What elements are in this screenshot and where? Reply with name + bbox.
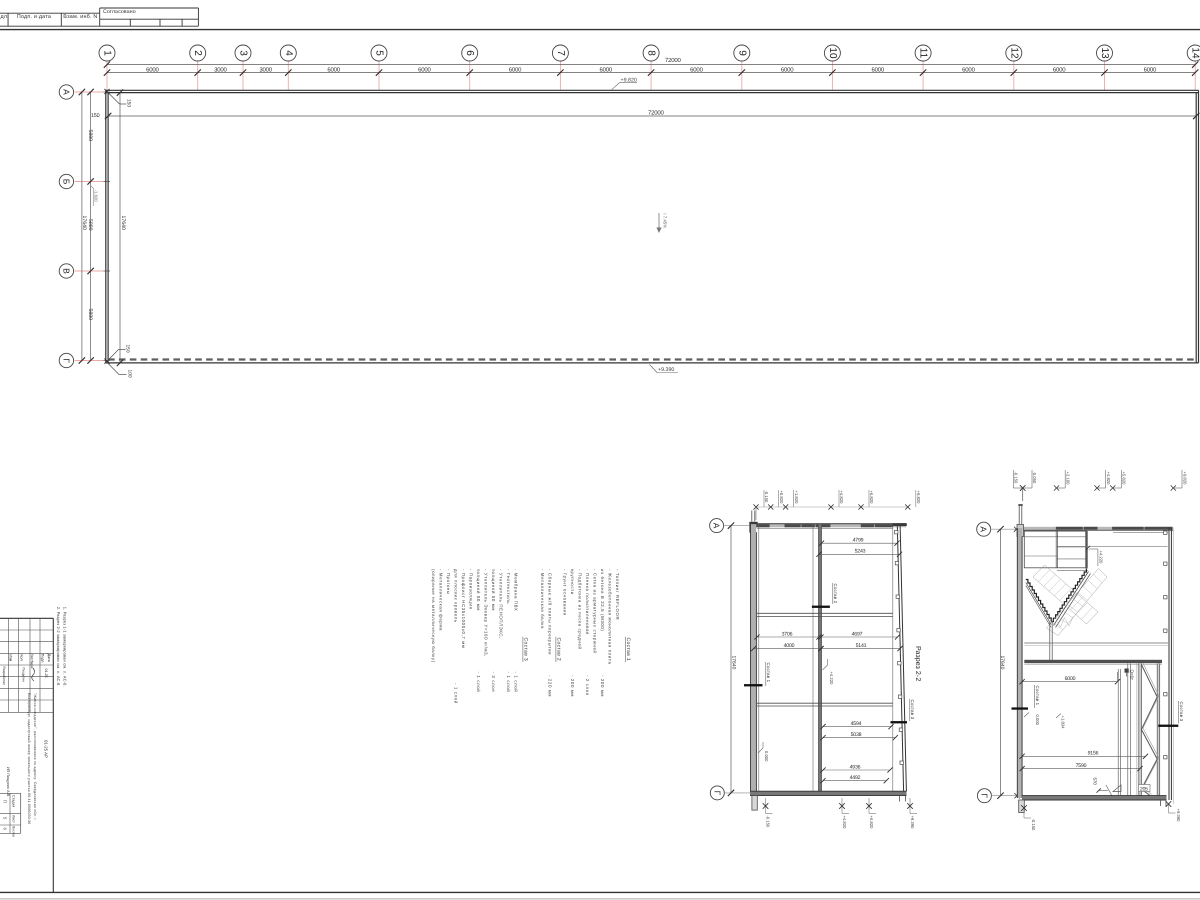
- svg-text:+6.820: +6.820: [869, 491, 874, 505]
- svg-text:Состав 1: Состав 1: [625, 638, 631, 662]
- svg-text:6000: 6000: [599, 66, 612, 73]
- svg-text:Согласовано: Согласовано: [103, 9, 136, 15]
- svg-text:Разрез 2-2: Разрез 2-2: [914, 646, 921, 681]
- svg-text:150: 150: [124, 345, 130, 353]
- svg-text:6000: 6000: [146, 66, 159, 73]
- svg-text:17640: 17640: [120, 216, 126, 231]
- svg-text:- 1 слой: - 1 слой: [514, 672, 519, 693]
- svg-text:6000: 6000: [327, 66, 340, 73]
- svg-text:- 200 мм: - 200 мм: [570, 675, 575, 697]
- svg-text:- Металлическая балка: - Металлическая балка: [540, 569, 545, 629]
- svg-text:+4.820: +4.820: [1106, 472, 1111, 486]
- svg-text:- 1 слой: - 1 слой: [506, 672, 511, 693]
- svg-text:Состав 3: Состав 3: [522, 638, 528, 662]
- svg-text:- Пароизоляция: - Пароизоляция: [469, 569, 474, 610]
- svg-text:12: 12: [1008, 47, 1019, 59]
- svg-text:4799: 4799: [853, 538, 864, 544]
- svg-text:6000: 6000: [781, 66, 794, 73]
- svg-text:3706: 3706: [782, 631, 793, 637]
- svg-text:Г: Г: [712, 791, 722, 796]
- svg-text:- 1 слой: - 1 слой: [476, 672, 481, 693]
- svg-text:01-25 АР: 01-25 АР: [44, 740, 49, 758]
- svg-text:2. Разрез 2-2 замаркирован см.: 2. Разрез 2-2 замаркирован см. л. АС-8: [56, 607, 61, 686]
- svg-text:11: 11: [918, 48, 929, 59]
- svg-text:- Прогоны: - Прогоны: [446, 569, 451, 595]
- svg-text:Разработал: Разработал: [2, 667, 6, 685]
- svg-text:(опирание на металлическую бал: (опирание на металлическую балку): [431, 569, 436, 663]
- svg-text:Состав 2: Состав 2: [555, 638, 561, 662]
- svg-text:Состав 2: Состав 2: [833, 584, 838, 604]
- svg-text:А: А: [979, 526, 989, 532]
- svg-text:4697: 4697: [852, 631, 863, 637]
- svg-text:из бетона В 22,5 (М300): из бетона В 22,5 (М300): [600, 569, 605, 632]
- svg-text:Пищулин: Пищулин: [22, 668, 26, 683]
- svg-text:205: 205: [1140, 787, 1148, 793]
- svg-text:3: 3: [238, 50, 249, 56]
- svg-text:72000: 72000: [665, 57, 682, 64]
- svg-text:17640: 17640: [81, 216, 87, 231]
- svg-text:+1.834: +1.834: [1061, 716, 1066, 730]
- svg-text:+4.220: +4.220: [1098, 551, 1103, 565]
- svg-text:А: А: [61, 89, 71, 95]
- svg-text:Взам. инб. N: Взам. инб. N: [63, 14, 97, 20]
- svg-text:3000: 3000: [259, 66, 272, 73]
- svg-text:+5.820: +5.820: [1122, 472, 1127, 486]
- svg-text:5: 5: [3, 817, 8, 820]
- svg-text:5038: 5038: [851, 732, 862, 738]
- svg-text:5141: 5141: [856, 643, 867, 649]
- svg-text:4: 4: [283, 50, 294, 56]
- svg-text:+4.820: +4.820: [839, 491, 844, 505]
- svg-text:5243: 5243: [855, 549, 866, 555]
- svg-text:Подп: Подп: [40, 654, 44, 663]
- svg-text:Стадия: Стадия: [12, 795, 16, 807]
- svg-text:В: В: [61, 268, 71, 274]
- svg-text:- Подбетонка из песка средней: - Подбетонка из песка средней: [577, 569, 582, 650]
- svg-text:Листов: Листов: [12, 826, 16, 837]
- svg-text:- Железобетонная монолитная пл: - Железобетонная монолитная плита: [607, 569, 612, 665]
- svg-text:5: 5: [374, 50, 385, 56]
- svg-text:дл: дл: [1, 14, 8, 20]
- svg-text:13: 13: [1099, 47, 1110, 59]
- svg-text:ЛистNдок: ЛистNдок: [30, 654, 34, 669]
- svg-text:Б: Б: [61, 179, 71, 185]
- svg-text:- 3 слоя: - 3 слоя: [491, 672, 496, 693]
- svg-text:крупности: крупности: [570, 569, 575, 595]
- svg-text:6000: 6000: [962, 66, 975, 73]
- svg-text:3000: 3000: [214, 66, 227, 73]
- svg-text:- Сборные ж/б плиты перекрытия: - Сборные ж/б плиты перекрытия: [548, 569, 553, 655]
- svg-text:- 2 слоя: - 2 слоя: [585, 675, 590, 696]
- svg-text:- 200 мм: - 200 мм: [600, 675, 605, 697]
- svg-text:+9.390: +9.390: [1176, 809, 1181, 823]
- svg-text:- Грунт основания: - Грунт основания: [562, 569, 567, 616]
- svg-text:Лист: Лист: [12, 815, 16, 823]
- svg-text:17640: 17640: [999, 656, 1005, 670]
- svg-text:1. Разрез 1-1 замаркирован см.: 1. Разрез 1-1 замаркирован см. л. АС-8.: [63, 607, 68, 687]
- svg-text:-0.050: -0.050: [1032, 472, 1037, 485]
- svg-text:-1.820: -1.820: [94, 190, 99, 203]
- svg-text:150: 150: [125, 99, 131, 107]
- svg-text:0.000: 0.000: [764, 751, 769, 762]
- svg-text:Кол: Кол: [19, 654, 23, 660]
- svg-text:- Профлист НС35х1000х0,7 мм: - Профлист НС35х1000х0,7 мм: [461, 569, 466, 649]
- svg-text:5880: 5880: [87, 219, 93, 231]
- svg-text:+9.820: +9.820: [1182, 472, 1187, 486]
- svg-text:10: 10: [827, 47, 838, 59]
- svg-text:Изм: Изм: [9, 654, 13, 661]
- svg-text:150: 150: [91, 113, 100, 119]
- svg-text:- Геотекстиль: - Геотекстиль: [506, 569, 511, 604]
- svg-text:+9.820: +9.820: [916, 491, 921, 505]
- svg-text:4492: 4492: [850, 775, 861, 781]
- svg-text:+4.820: +4.820: [842, 816, 847, 830]
- svg-text:- Утеплитель ПЕНОПЛЭКС,: - Утеплитель ПЕНОПЛЭКС,: [499, 569, 504, 639]
- svg-text:7: 7: [555, 50, 566, 56]
- svg-text:Состав 3: Состав 3: [910, 700, 915, 720]
- svg-text:6000: 6000: [690, 66, 703, 73]
- svg-text:i 7.45%: i 7.45%: [663, 214, 668, 229]
- svg-text:6000: 6000: [1144, 66, 1157, 73]
- svg-text:- Топпинг REFLOOR: - Топпинг REFLOOR: [615, 569, 620, 620]
- svg-text:01.25: 01.25: [44, 669, 48, 678]
- svg-text:+2.100: +2.100: [1066, 472, 1071, 486]
- svg-text:72000: 72000: [648, 110, 665, 117]
- svg-text:100: 100: [126, 370, 132, 378]
- svg-text:- Пленка полиэтиленовая: - Пленка полиэтиленовая: [585, 569, 590, 635]
- svg-text:6000: 6000: [1053, 66, 1066, 73]
- svg-text:6: 6: [464, 50, 475, 56]
- svg-text:1: 1: [102, 50, 113, 56]
- svg-text:6000: 6000: [1065, 676, 1076, 682]
- svg-text:9: 9: [736, 50, 747, 56]
- svg-text:570: 570: [1093, 778, 1098, 786]
- svg-text:Состав 1: Состав 1: [1035, 686, 1040, 706]
- svg-text:Г: Г: [61, 358, 71, 363]
- svg-text:Екатеринбург, кадастровый номе: Екатеринбург, кадастровый номер земельно…: [27, 693, 31, 824]
- svg-text:А: А: [712, 523, 722, 529]
- svg-text:- 220 мм: - 220 мм: [548, 675, 553, 697]
- svg-text:ИП Пищулин А.В.: ИП Пищулин А.В.: [6, 767, 10, 797]
- svg-text:+9.390: +9.390: [910, 816, 915, 830]
- svg-text:-0.150: -0.150: [1031, 819, 1036, 832]
- svg-text:2: 2: [192, 50, 203, 56]
- svg-text:7590: 7590: [1076, 763, 1087, 769]
- svg-text:Подп. и дата: Подп. и дата: [17, 14, 51, 20]
- svg-text:Состав 1: Состав 1: [766, 663, 771, 683]
- svg-text:6000: 6000: [509, 66, 522, 73]
- svg-text:П: П: [3, 800, 8, 803]
- svg-text:-0.150: -0.150: [1014, 472, 1019, 485]
- svg-text:"Жилое-складское", расположенн: "Жилое-складское", расположенное по адре…: [33, 693, 37, 821]
- svg-text:4936: 4936: [850, 764, 861, 770]
- svg-text:Г: Г: [979, 793, 989, 798]
- svg-text:- Утеплитель Эковер У=160 кг/м: - Утеплитель Эковер У=160 кг/м3,: [484, 569, 489, 657]
- svg-text:5880: 5880: [87, 130, 93, 142]
- svg-text:5880: 5880: [87, 309, 93, 321]
- svg-text:6: 6: [3, 828, 8, 831]
- svg-text:4594: 4594: [851, 721, 862, 727]
- svg-text:+0.820: +0.820: [779, 491, 784, 505]
- svg-text:- Металлическая ферма: - Металлическая ферма: [439, 569, 444, 631]
- svg-text:толщиной 50 мм: толщиной 50 мм: [491, 569, 496, 611]
- svg-text:8: 8: [646, 50, 657, 56]
- svg-text:-0.150: -0.150: [766, 816, 771, 829]
- svg-text:Дата: Дата: [47, 654, 51, 662]
- svg-text:17640: 17640: [731, 656, 737, 670]
- svg-text:+1.820: +1.820: [794, 491, 799, 505]
- svg-text:0.000: 0.000: [1035, 715, 1040, 726]
- svg-text:для плоских кровель: для плоских кровель: [454, 569, 459, 623]
- svg-text:- 1 слой: - 1 слой: [454, 683, 459, 704]
- svg-text:9156: 9156: [1088, 751, 1099, 757]
- svg-text:14: 14: [1190, 47, 1200, 59]
- svg-text:6000: 6000: [871, 66, 884, 73]
- svg-text:+4.220: +4.220: [829, 672, 834, 686]
- svg-text:4000: 4000: [784, 643, 795, 649]
- svg-text:6000: 6000: [418, 66, 431, 73]
- svg-text:Состав 3: Состав 3: [1179, 702, 1184, 722]
- svg-text:- Сетка из арматурных стержней: - Сетка из арматурных стержней: [592, 569, 597, 654]
- svg-text:+6.820: +6.820: [869, 816, 874, 830]
- svg-text:толщиной 50 мм: толщиной 50 мм: [476, 569, 481, 611]
- svg-text:- Мембрана ПВХ: - Мембрана ПВХ: [514, 569, 519, 611]
- svg-text:-0.150: -0.150: [764, 491, 769, 504]
